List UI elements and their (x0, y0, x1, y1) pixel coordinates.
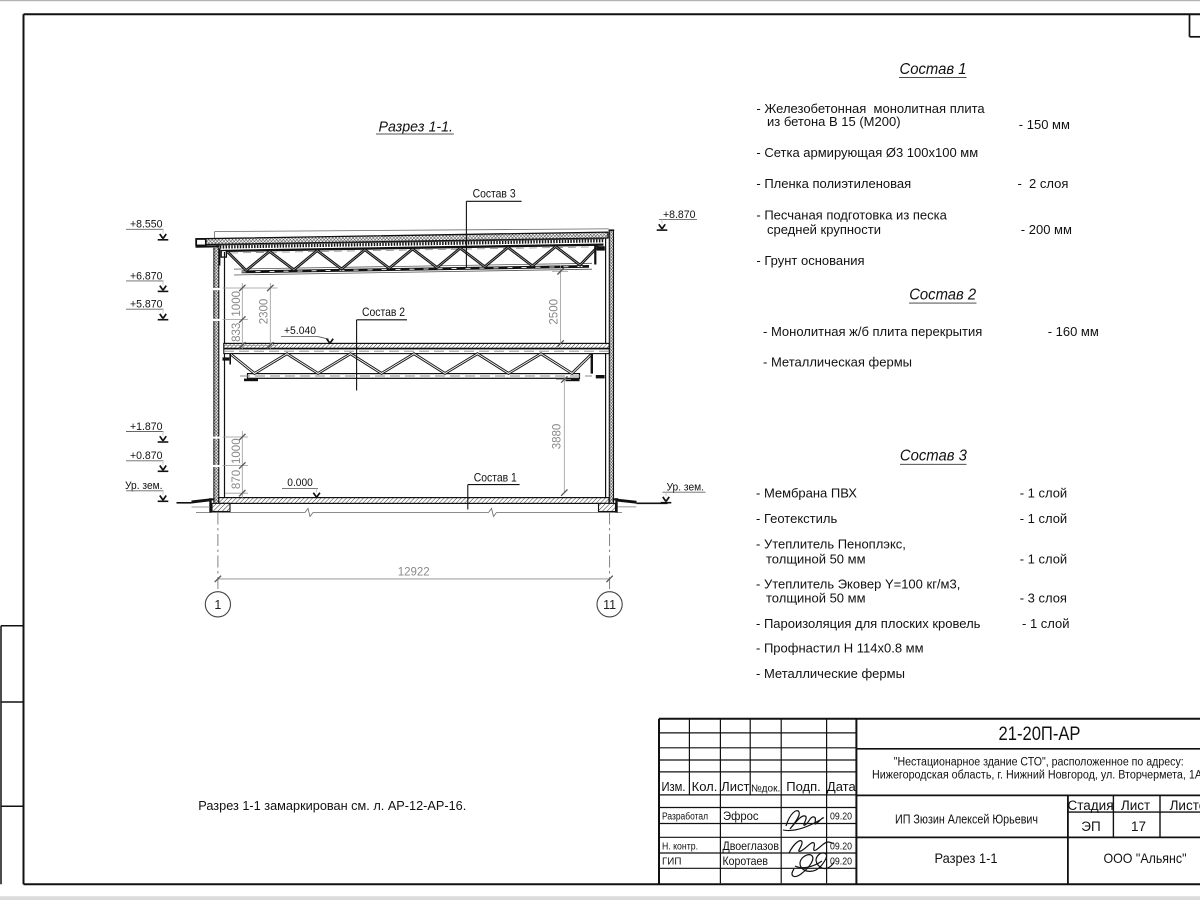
svg-text:"Нестационарное здание СТО", р: "Нестационарное здание СТО", расположенн… (894, 756, 1184, 768)
svg-text:Состав 3: Состав 3 (900, 448, 967, 465)
svg-text:Изм.: Изм. (662, 779, 686, 794)
svg-text:средней крупности: средней крупности (767, 222, 881, 237)
svg-text:- Пароизоляция для плоских кро: - Пароизоляция для плоских кровель (756, 616, 981, 631)
svg-text:Кол.: Кол. (692, 779, 718, 794)
svg-text:870: 870 (231, 470, 243, 489)
svg-text:Дата: Дата (827, 779, 857, 794)
svg-text:2300: 2300 (258, 299, 270, 325)
svg-text:- 1 слой: - 1 слой (1022, 616, 1070, 631)
svg-text:№док.: №док. (751, 783, 780, 794)
svg-text:Н. контр.: Н. контр. (662, 841, 698, 852)
svg-text:- Металлические фермы: - Металлические фермы (756, 666, 905, 681)
svg-text:Лист: Лист (1121, 798, 1150, 813)
svg-text:Эфрос: Эфрос (723, 809, 759, 823)
svg-text:- Металлическая фермы: - Металлическая фермы (763, 355, 912, 370)
svg-text:Состав 1: Состав 1 (474, 470, 517, 484)
svg-text:- 1 слой: - 1 слой (1020, 511, 1068, 526)
svg-text:Разрез 1-1.: Разрез 1-1. (379, 118, 454, 135)
svg-text:ИП Зюзин Алексей Юрьевич: ИП Зюзин Алексей Юрьевич (895, 812, 1038, 826)
svg-text:Двоеглазов: Двоеглазов (723, 839, 780, 853)
svg-text:- 200 мм: - 200 мм (1021, 222, 1072, 237)
svg-text:Состав 3: Состав 3 (473, 186, 516, 200)
svg-text:11: 11 (603, 598, 616, 612)
svg-text:09.20: 09.20 (830, 841, 852, 853)
svg-text:- 2 слоя: - 2 слоя (1018, 176, 1069, 191)
svg-text:Стадия: Стадия (1067, 798, 1113, 813)
svg-text:- Песчаная подготовка из песка: - Песчаная подготовка из песка (756, 207, 947, 222)
svg-text:- Грунт основания: - Грунт основания (756, 253, 864, 268)
svg-text:Состав 2: Состав 2 (362, 305, 405, 319)
svg-text:3880: 3880 (551, 424, 563, 450)
svg-text:- Сетка армирующая Ø3 100х100: - Сетка армирующая Ø3 100х100 мм (756, 145, 978, 160)
svg-text:09.20: 09.20 (830, 856, 852, 868)
svg-text:Состав 1: Состав 1 (900, 61, 967, 78)
svg-text:из бетона В 15 (М200): из бетона В 15 (М200) (767, 114, 901, 129)
svg-text:09.20: 09.20 (830, 811, 852, 823)
svg-text:1000: 1000 (231, 291, 243, 317)
svg-text:толщиной 50 мм: толщиной 50 мм (766, 590, 866, 605)
svg-text:0.000: 0.000 (287, 477, 313, 489)
svg-text:Разрез 1-1: Разрез 1-1 (935, 850, 998, 866)
svg-text:Лист: Лист (721, 779, 749, 794)
svg-text:1000: 1000 (231, 438, 243, 464)
svg-text:ГИП: ГИП (662, 856, 681, 867)
svg-text:- Мембрана ПВХ: - Мембрана ПВХ (756, 485, 857, 500)
svg-text:ООО "Альянс": ООО "Альянс" (1104, 850, 1187, 866)
svg-text:- Профнастил Н 114х0.8 мм: - Профнастил Н 114х0.8 мм (756, 640, 924, 655)
svg-text:17: 17 (1131, 819, 1146, 834)
svg-text:- Утеплитель Эковер Y=100 кг/м: - Утеплитель Эковер Y=100 кг/м3, (756, 576, 960, 591)
svg-text:- 160 мм: - 160 мм (1048, 324, 1099, 339)
svg-text:ЭП: ЭП (1081, 819, 1100, 834)
svg-text:- 150 мм: - 150 мм (1019, 117, 1070, 132)
svg-text:Нижегородская область, г. Нижн: Нижегородская область, г. Нижний Новгоро… (872, 769, 1200, 781)
svg-text:- Геотекстиль: - Геотекстиль (756, 511, 837, 526)
svg-text:- 1 слой: - 1 слой (1020, 552, 1068, 567)
svg-text:Подп.: Подп. (786, 779, 821, 794)
svg-text:Состав 2: Состав 2 (909, 287, 976, 304)
svg-text:- Монолитная ж/б плита перекры: - Монолитная ж/б плита перекрытия (763, 324, 982, 339)
svg-text:- 1 слой: - 1 слой (1020, 485, 1068, 500)
svg-text:12922: 12922 (398, 566, 430, 578)
svg-text:+5.040: +5.040 (284, 325, 316, 337)
svg-text:- Пленка полиэтиленовая: - Пленка полиэтиленовая (756, 176, 911, 191)
svg-text:Листов: Листов (1170, 798, 1200, 813)
svg-text:21-20П-АР: 21-20П-АР (999, 724, 1081, 745)
svg-text:Разрез 1-1 замаркирован см. л.: Разрез 1-1 замаркирован см. л. АР-12-АР-… (198, 799, 466, 813)
svg-text:2500: 2500 (548, 299, 560, 325)
svg-text:- Утеплитель Пеноплэкс,: - Утеплитель Пеноплэкс, (756, 537, 906, 552)
svg-text:толщиной 50 мм: толщиной 50 мм (766, 552, 866, 567)
svg-text:1: 1 (214, 598, 221, 612)
svg-text:Коротаев: Коротаев (723, 854, 769, 868)
svg-text:- 3 слоя: - 3 слоя (1020, 590, 1067, 605)
svg-text:Разработал: Разработал (662, 811, 708, 822)
svg-text:833: 833 (231, 323, 243, 342)
